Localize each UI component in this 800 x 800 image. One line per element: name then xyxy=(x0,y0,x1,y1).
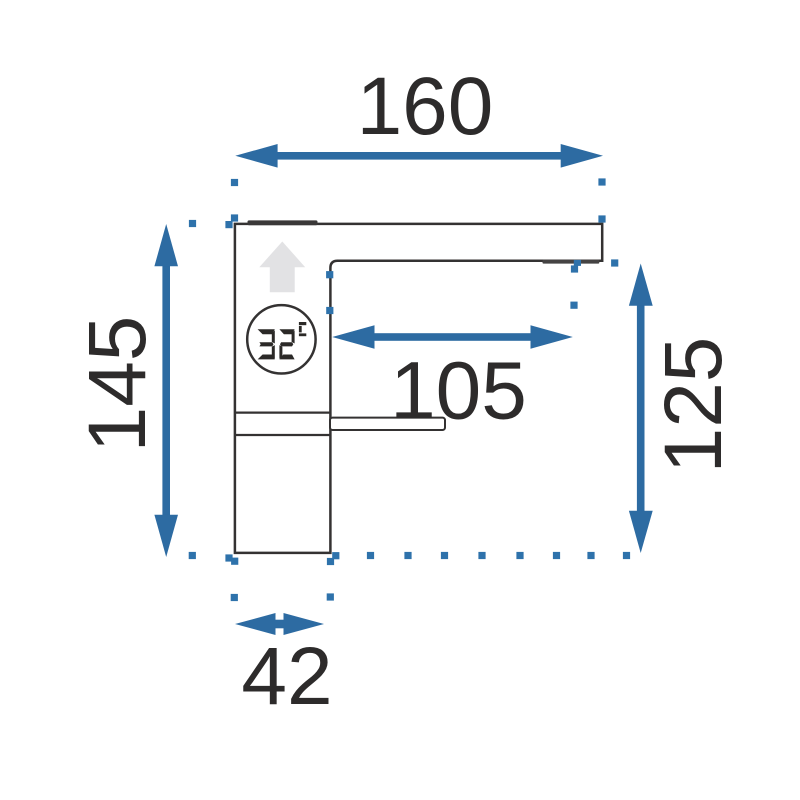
svg-text:160: 160 xyxy=(357,61,494,152)
svg-text:105: 105 xyxy=(390,346,527,437)
svg-text:42: 42 xyxy=(241,631,332,722)
svg-text:145: 145 xyxy=(72,316,163,453)
svg-text:125: 125 xyxy=(648,337,739,474)
